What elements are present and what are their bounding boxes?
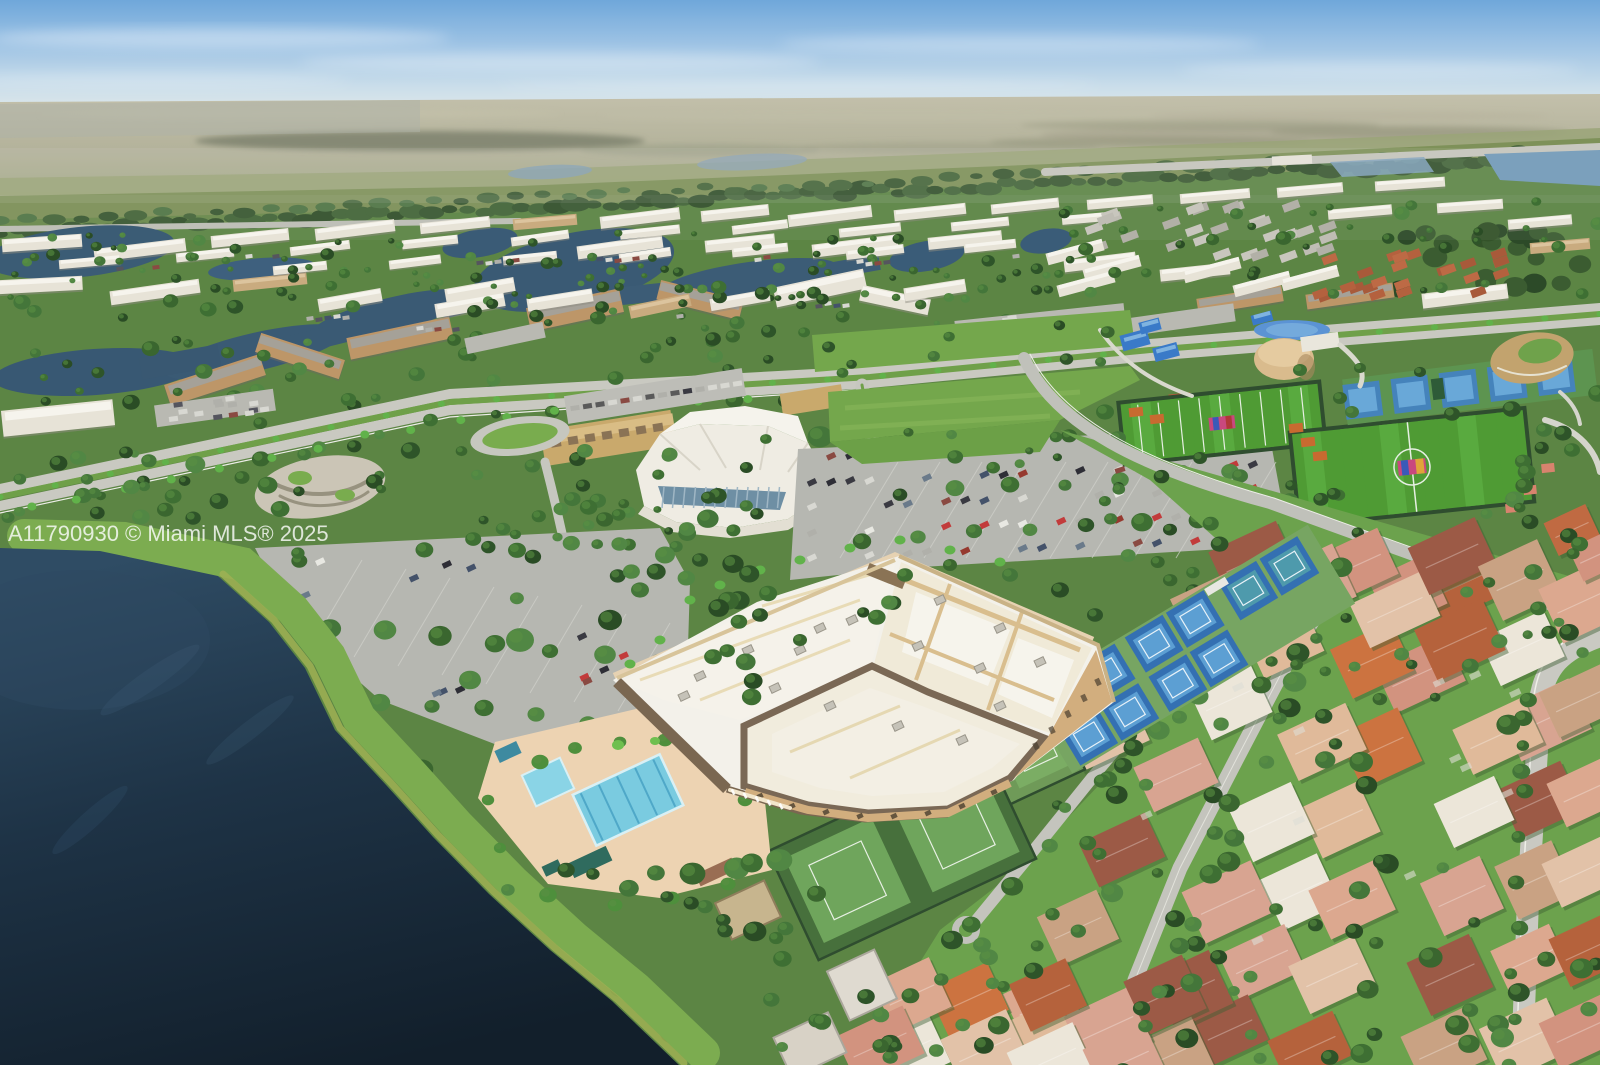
svg-text:A11790930 © Miami MLS® 2025: A11790930 © Miami MLS® 2025: [8, 521, 329, 546]
